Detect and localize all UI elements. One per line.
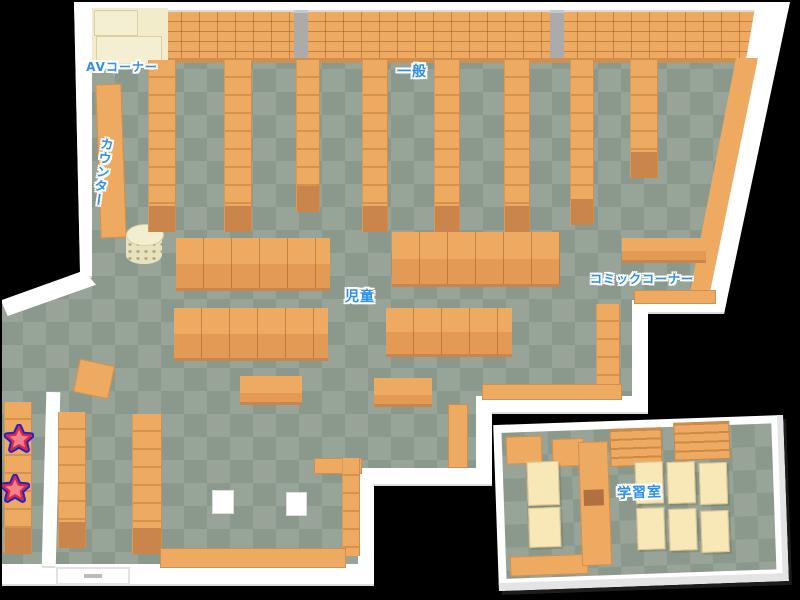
bookshelf: [132, 414, 162, 554]
library-floor-map: AVコーナー 一般 カウンター 児童 コミックコーナー: [0, 0, 800, 600]
av-shelf: [94, 10, 138, 36]
study-table: [700, 510, 729, 553]
star-marker: [4, 424, 34, 454]
star-marker: [0, 474, 30, 504]
wall: [70, 0, 92, 278]
bookshelf: [386, 308, 512, 357]
wall-bookshelf-band: [164, 12, 784, 63]
bookshelf: [224, 60, 252, 232]
bookshelf: [174, 308, 328, 361]
area-label-general: 一般: [362, 58, 462, 84]
bookshelf: [630, 60, 658, 178]
wall-bookshelf: [448, 404, 468, 468]
wall-bookshelf: [342, 458, 360, 556]
bookshelf: [392, 232, 560, 287]
bookshelf: [504, 60, 530, 232]
bookshelf: [434, 60, 460, 232]
area-label-av-corner: AVコーナー: [70, 54, 174, 78]
bookshelf: [673, 421, 730, 461]
area-label-study-room: 学習室: [589, 476, 690, 507]
pillar: [294, 10, 308, 58]
area-label-children: 児童: [318, 282, 402, 310]
bookshelf: [296, 60, 320, 212]
bookshelf: [570, 60, 594, 225]
low-bench: [240, 376, 302, 405]
wall: [358, 468, 492, 486]
bookshelf: [148, 60, 176, 232]
area-label-comic-corner: コミックコーナー: [566, 264, 718, 292]
study-table: [528, 507, 561, 548]
bookshelf: [622, 238, 706, 263]
study-table: [636, 507, 665, 550]
bookshelf: [510, 554, 589, 577]
study-table: [668, 508, 697, 551]
low-bench: [374, 378, 432, 407]
wall-bookshelf: [160, 548, 346, 568]
study-room: 学習室: [493, 415, 789, 591]
bookshelf: [176, 238, 330, 291]
bookshelf: [362, 60, 388, 232]
small-table: [73, 359, 115, 400]
stool: [212, 490, 234, 514]
bookshelf: [58, 412, 86, 548]
pillar: [550, 10, 564, 58]
study-table: [699, 462, 728, 505]
stool: [286, 492, 307, 516]
study-table: [526, 461, 560, 506]
entrance-door: [56, 567, 130, 585]
bookshelf: [506, 435, 543, 464]
wall-bookshelf: [482, 384, 622, 400]
bookshelf: [634, 290, 716, 304]
